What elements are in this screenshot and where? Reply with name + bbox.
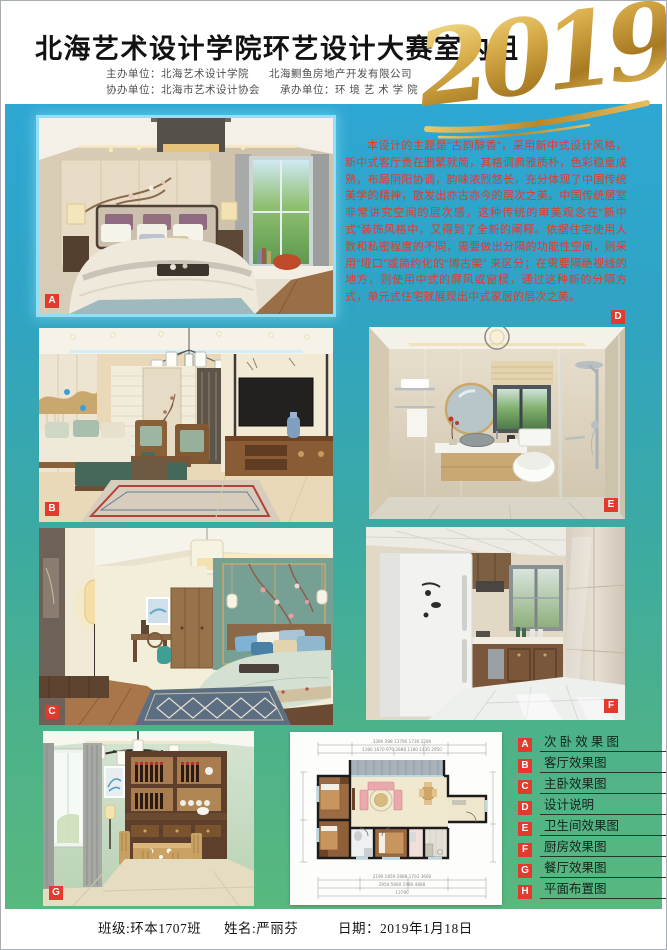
svg-text:13790: 13790 (395, 890, 409, 895)
legend-item-b: B 客厅效果图 (518, 759, 666, 773)
legend-label-h: 平面布置图 (540, 878, 666, 899)
back-wall-desk-area (95, 566, 213, 678)
photo-a-badge: A (45, 294, 59, 308)
floor-plan-box: 3390 398 13790 1730 2280 1180 1670 970 2… (290, 732, 502, 905)
host-unit-2: 北海鲗鱼房地产开发有限公司 (269, 66, 412, 81)
description-badge: D (611, 310, 625, 324)
design-description-text: 本设计的主题是“古韵醇香”，采用新中式设计风格，新中式客厅贵在删繁就简，其格调典… (345, 138, 627, 306)
kitchen-illustration (366, 527, 625, 720)
square-pendant-lamp (151, 118, 231, 152)
design-description-block: 本设计的主题是“古韵醇香”，采用新中式设计风格，新中式客厅贵在删繁就简，其格调典… (345, 138, 627, 320)
photo-f-kitchen: F (366, 527, 625, 720)
area-rug (81, 480, 281, 522)
competition-poster: 北海艺术设计学院环艺设计大赛室内组 主办单位：北海艺术设计学院 北海鲗鱼房地产开… (0, 0, 667, 950)
legend-key-f: F (518, 843, 532, 857)
host-unit: 主办单位：北海艺术设计学院 (106, 66, 249, 81)
legend-key-a: A (518, 738, 532, 752)
photo-f-badge: F (604, 699, 618, 713)
legend-item-h: H 平面布置图 (518, 885, 666, 899)
undertaker: 承办单位：环 境 艺 术 学 院 (280, 82, 418, 97)
svg-text:2190 1859 2888 1703 36: 2190 1859 2888 1703 3660 (373, 874, 432, 879)
master-bedroom-illustration (39, 528, 333, 725)
legend-key-h: H (518, 885, 532, 899)
photo-e-bathroom: E (369, 327, 625, 519)
vanity-mirror (446, 384, 496, 434)
date-field: 日期：2019年1月18日 (338, 917, 473, 937)
living-room-illustration (39, 328, 333, 522)
balcony (350, 760, 444, 778)
legend-label-b: 客厅效果图 (540, 752, 666, 773)
photo-c-master-bedroom: C (39, 528, 333, 725)
legend-label-a: 次 卧 效 果 图 (540, 731, 666, 752)
bathroom-illustration (369, 327, 625, 519)
patterned-rug (135, 686, 291, 725)
dining-room-illustration (43, 731, 254, 906)
legend-item-f: F 厨房效果图 (518, 843, 666, 857)
legend-item-g: G 餐厅效果图 (518, 864, 666, 878)
gold-brush-swoosh (419, 99, 654, 141)
floor-plan-drawing: 3390 398 13790 1730 2280 1180 1670 970 2… (290, 732, 502, 905)
co-organizer: 协办单位：北海市艺术设计协会 (106, 82, 260, 97)
television (239, 378, 313, 426)
legend-label-d: 设计说明 (540, 794, 666, 815)
poster-footer: 班级:环本1707班 姓名:严丽芬 日期：2019年1月18日 (1, 909, 666, 949)
entry-corridor (448, 796, 486, 822)
legend-item-a: A 次 卧 效 果 图 (518, 738, 666, 752)
legend-label-e: 卫生间效果图 (540, 815, 666, 836)
secondary-bedroom-illustration (39, 118, 333, 314)
kitchen-window (509, 565, 563, 631)
organizer-line-1: 主办单位：北海艺术设计学院 北海鲗鱼房地产开发有限公司 (106, 66, 412, 81)
photo-g-dining-room: G (43, 731, 254, 906)
svg-text:2950 5660 1980 488: 2950 5660 1980 4888 (379, 882, 426, 887)
photo-a-secondary-bedroom: A (39, 118, 333, 314)
wine-cabinet (125, 751, 227, 859)
legend-key-c: C (518, 780, 532, 794)
bathroom-window (491, 361, 553, 433)
legend-key-b: B (518, 759, 532, 773)
sofa (39, 420, 131, 468)
photo-g-badge: G (49, 886, 63, 900)
photo-b-living-room: B (39, 328, 333, 522)
legend-key-d: D (518, 801, 532, 815)
poster-body: A 本设计的主题是“古韵醇香”，采用新中式设计风格，新中式客厅贵在删繁就简，其格… (5, 104, 662, 909)
legend-item-d: D 设计说明 (518, 801, 666, 815)
organizer-line-2: 协办单位：北海市艺术设计协会 承办单位：环 境 艺 术 学 院 (106, 82, 418, 97)
legend-item-c: C 主卧效果图 (518, 780, 666, 794)
photo-e-badge: E (604, 498, 618, 512)
legend-label-f: 厨房效果图 (540, 836, 666, 857)
photo-c-badge: C (45, 705, 59, 719)
legend: A 次 卧 效 果 图 B 客厅效果图 C 主卧效果图 D 设计说明 E 卫生间… (518, 738, 666, 906)
legend-key-g: G (518, 864, 532, 878)
red-pillow (273, 254, 301, 270)
svg-text:1180 1670 970 2888 118: 1180 1670 970 2888 1180 1430 2950 (362, 747, 442, 752)
photo-b-badge: B (45, 502, 59, 516)
svg-text:3390 398 13790 1730: 3390 398 13790 1730 2280 (373, 739, 432, 744)
legend-item-e: E 卫生间效果图 (518, 822, 666, 836)
legend-key-e: E (518, 822, 532, 836)
legend-label-g: 餐厅效果图 (540, 857, 666, 878)
class-field: 班级:环本1707班 (98, 917, 201, 937)
wall-art (105, 767, 124, 797)
student-name-field: 姓名:严丽芬 (224, 917, 298, 937)
legend-label-c: 主卧效果图 (540, 773, 666, 794)
